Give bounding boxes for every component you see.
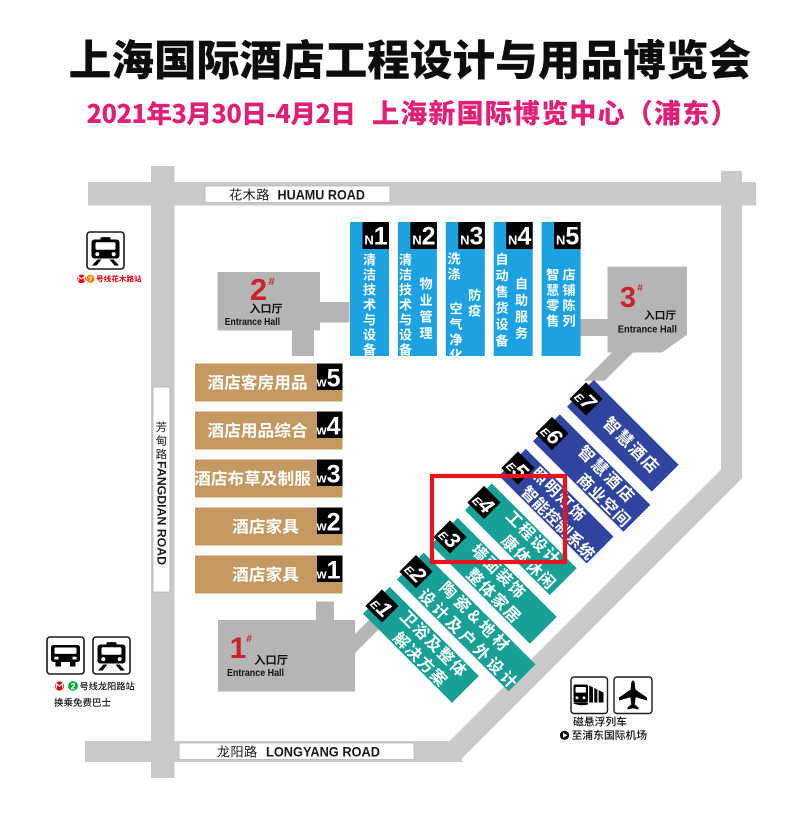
svg-text:Entrance Hall: Entrance Hall — [618, 324, 677, 336]
svg-text:2: 2 — [250, 272, 267, 307]
svg-text:7: 7 — [88, 275, 92, 284]
svg-text:#: # — [268, 276, 274, 288]
svg-text:Entrance Hall: Entrance Hall — [227, 667, 284, 679]
svg-text:#: # — [637, 283, 643, 294]
svg-text:#: # — [246, 634, 252, 645]
svg-text:FANGDIAN ROAD: FANGDIAN ROAD — [154, 461, 168, 565]
svg-text:1: 1 — [230, 632, 247, 665]
svg-text:Entrance Hall: Entrance Hall — [225, 316, 280, 328]
svg-text:LONGYANG ROAD: LONGYANG ROAD — [266, 744, 380, 759]
svg-text:HUAMU ROAD: HUAMU ROAD — [278, 187, 366, 202]
svg-text:2: 2 — [70, 681, 75, 691]
svg-text:3: 3 — [620, 282, 636, 314]
